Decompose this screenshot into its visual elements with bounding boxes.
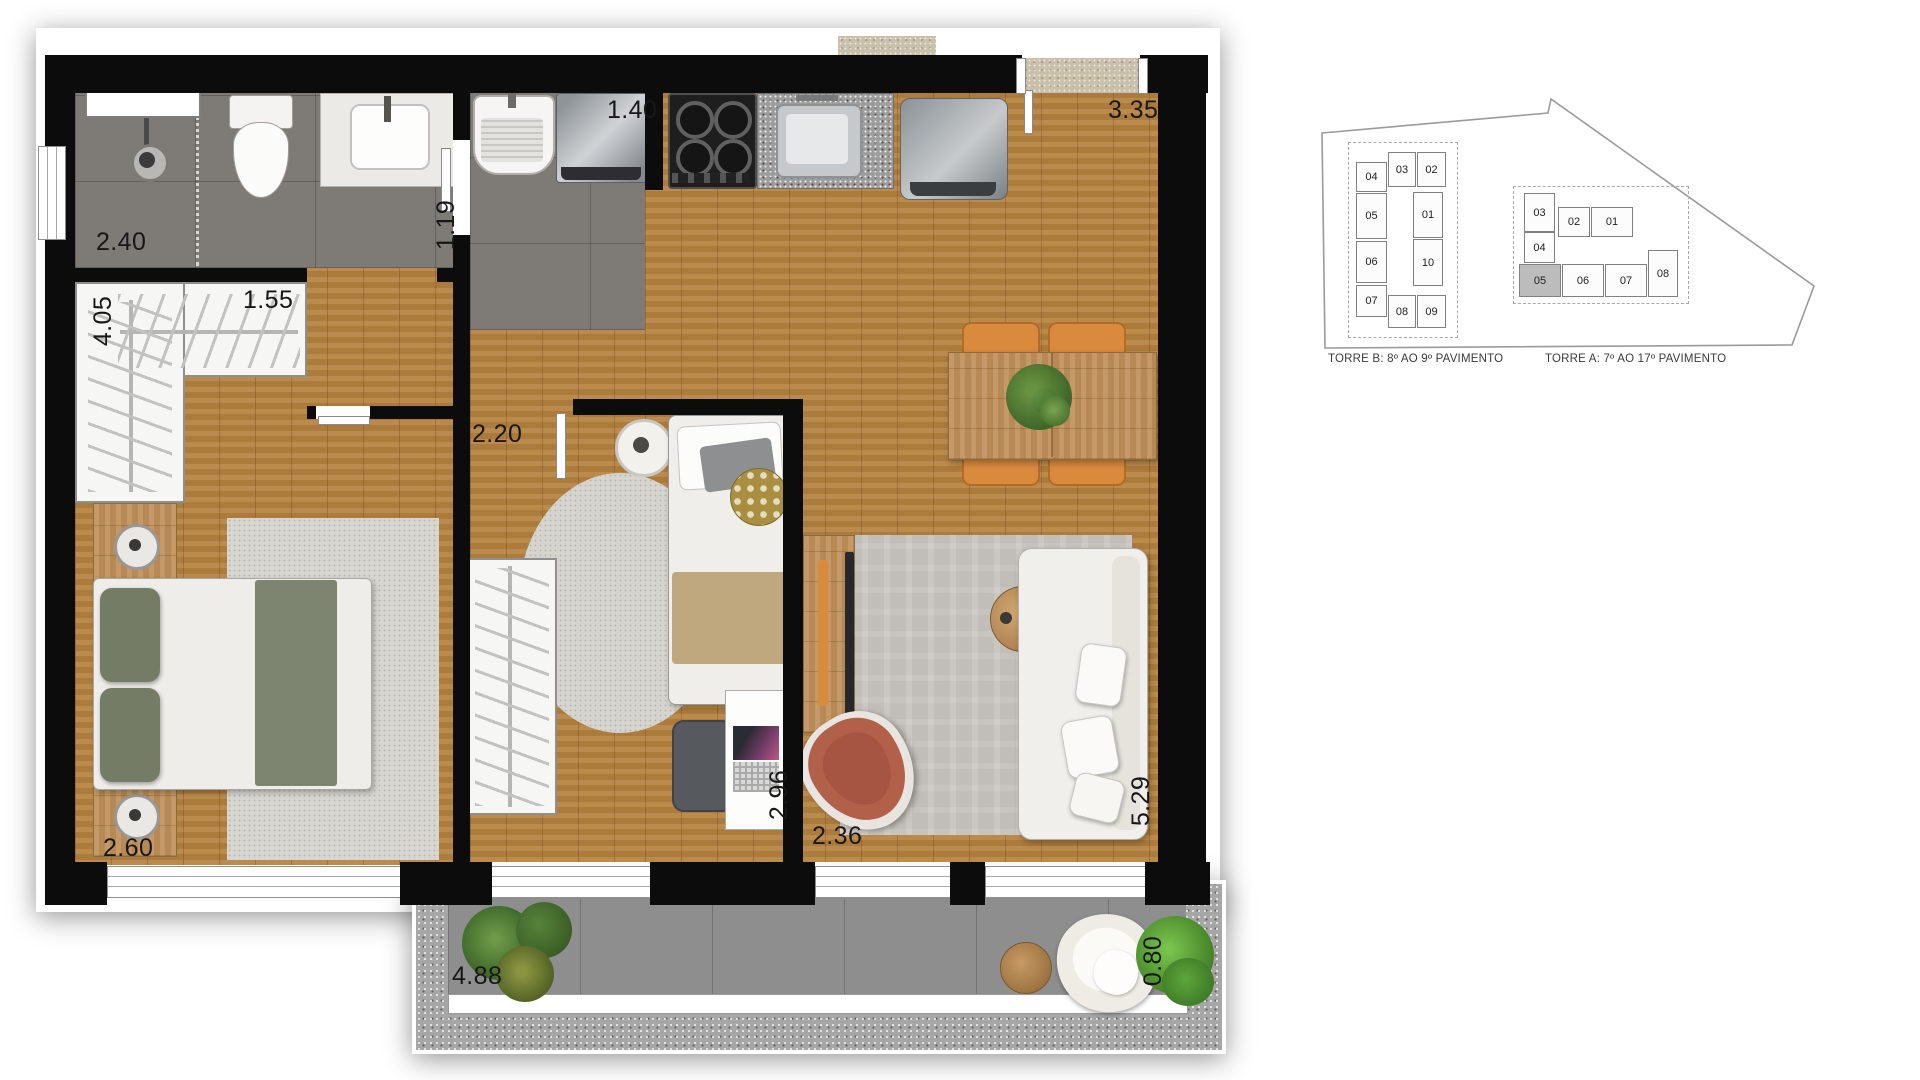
dim-bathroom-width: 2.40	[96, 228, 146, 257]
dim-living-depth: 5.29	[1127, 761, 1153, 841]
floor-plan-page: 2.40 1.19 4.05 1.55 1.40 3.35 2.20 2.96 …	[0, 0, 1920, 1080]
balcony-plant-3	[496, 946, 554, 1002]
wall-office-top	[573, 399, 803, 415]
wall-bottom-6	[1145, 862, 1210, 905]
torre-a-unit-01: 01	[1591, 207, 1633, 237]
wardrobe-hangers	[475, 568, 549, 806]
dim-dining-width: 3.35	[1108, 96, 1158, 125]
torre-a-label: TORRE A: 7º AO 17º PAVIMENTO	[1545, 353, 1726, 365]
wall-office-bottom-stub	[783, 830, 803, 866]
torre-a-unit-07: 07	[1605, 264, 1647, 297]
torre-b-unit-06: 06	[1356, 241, 1387, 283]
wall-bottom-2	[400, 862, 470, 905]
office-lamp-center	[633, 437, 649, 453]
torre-b-unit-03: 03	[1388, 152, 1416, 187]
dim-bathroom-depth: 1.19	[432, 185, 458, 265]
single-bed-blanket	[672, 572, 786, 664]
balcony-table	[1000, 942, 1052, 994]
entry-hall-tile	[1022, 58, 1140, 93]
key-plan: 04 03 02 05 01 06 10 07 08 09 TORRE B: 8…	[1320, 95, 1910, 395]
torre-b-unit-02: 02	[1417, 152, 1446, 187]
wall-bath-closet	[75, 268, 307, 282]
torre-a-unit-06: 06	[1562, 264, 1604, 297]
wall-top	[45, 55, 1022, 93]
entry-door-leaf	[1024, 90, 1033, 134]
entry-jamb-left	[1016, 58, 1026, 94]
torre-a-unit-03: 03	[1524, 193, 1555, 232]
corridor-tile	[838, 36, 936, 56]
dim-office-door: 2.20	[472, 420, 522, 449]
office-door-leaf	[556, 413, 566, 479]
burner-4	[714, 139, 752, 177]
dim-office-depth: 2.96	[765, 755, 791, 835]
fridge-front	[910, 182, 996, 196]
torre-a-unit-08: 08	[1648, 250, 1678, 297]
entry-jamb-right	[1138, 58, 1148, 94]
dim-bedroom-width: 2.60	[103, 834, 153, 863]
washer-front	[561, 167, 641, 180]
bed-blanket	[255, 580, 337, 786]
dim-laundry-width: 1.40	[607, 96, 657, 125]
dim-closet-length: 4.05	[89, 281, 115, 361]
torre-b-unit-05: 05	[1356, 193, 1387, 239]
torre-a-unit-04: 04	[1524, 232, 1555, 263]
kitchen-sink-basin	[786, 114, 848, 164]
dim-balcony-depth: 0.80	[1139, 921, 1165, 1001]
wall-bottom-1	[45, 862, 107, 905]
wall-bottom-4	[650, 862, 815, 905]
torre-b-unit-01: 01	[1413, 192, 1443, 238]
torre-b-unit-08: 08	[1388, 295, 1416, 328]
bedroom-door-leaf	[318, 416, 370, 425]
wall-right	[1158, 55, 1206, 905]
burner-2	[714, 101, 752, 139]
torre-b-unit-04: 04	[1356, 162, 1387, 192]
office-window-band	[490, 866, 652, 898]
lamp-center-bottom	[129, 809, 141, 821]
torre-b-unit-07: 07	[1356, 285, 1387, 317]
burner-1	[676, 101, 714, 139]
torre-a-unit-05-highlighted: 05	[1519, 264, 1561, 297]
vanity-faucet	[384, 96, 391, 122]
lamp-center-top	[129, 539, 141, 551]
bedroom-window-band	[107, 866, 402, 898]
balcony-plant-5	[1162, 958, 1214, 1006]
living-window-band-1	[815, 866, 952, 898]
laundry-sink-ridges	[481, 118, 543, 162]
wall-bottom-5	[950, 862, 985, 905]
sofa-pillow-2	[1059, 714, 1120, 780]
torre-a-unit-02: 02	[1558, 207, 1590, 237]
cooktop-knobs	[672, 173, 749, 183]
shower-drain	[139, 152, 155, 168]
bathroom-window	[38, 146, 66, 240]
bed-pillow-2	[100, 688, 160, 782]
sideboard-accent	[818, 560, 828, 706]
bed-pillow-1	[100, 588, 160, 682]
tv-icon	[845, 552, 854, 714]
table-plant-2	[1040, 396, 1070, 426]
shower-glass-partition	[196, 98, 199, 266]
wall-bottom-3	[470, 862, 492, 905]
burner-3	[676, 139, 714, 177]
torre-b-label: TORRE B: 8º AO 9º PAVIMENTO	[1328, 353, 1503, 365]
dim-closet-width: 1.55	[243, 286, 293, 315]
side-table-detail	[1000, 612, 1012, 624]
dim-balcony-width: 4.88	[452, 962, 502, 991]
kitchen-faucet	[796, 95, 838, 101]
polka-dot-cushion	[730, 468, 788, 526]
torre-b-unit-09: 09	[1417, 295, 1446, 328]
sofa-pillow-1	[1074, 642, 1128, 708]
torre-b-unit-10: 10	[1413, 239, 1443, 286]
living-window-band-2	[985, 866, 1147, 898]
dim-living-width: 2.36	[812, 822, 862, 851]
